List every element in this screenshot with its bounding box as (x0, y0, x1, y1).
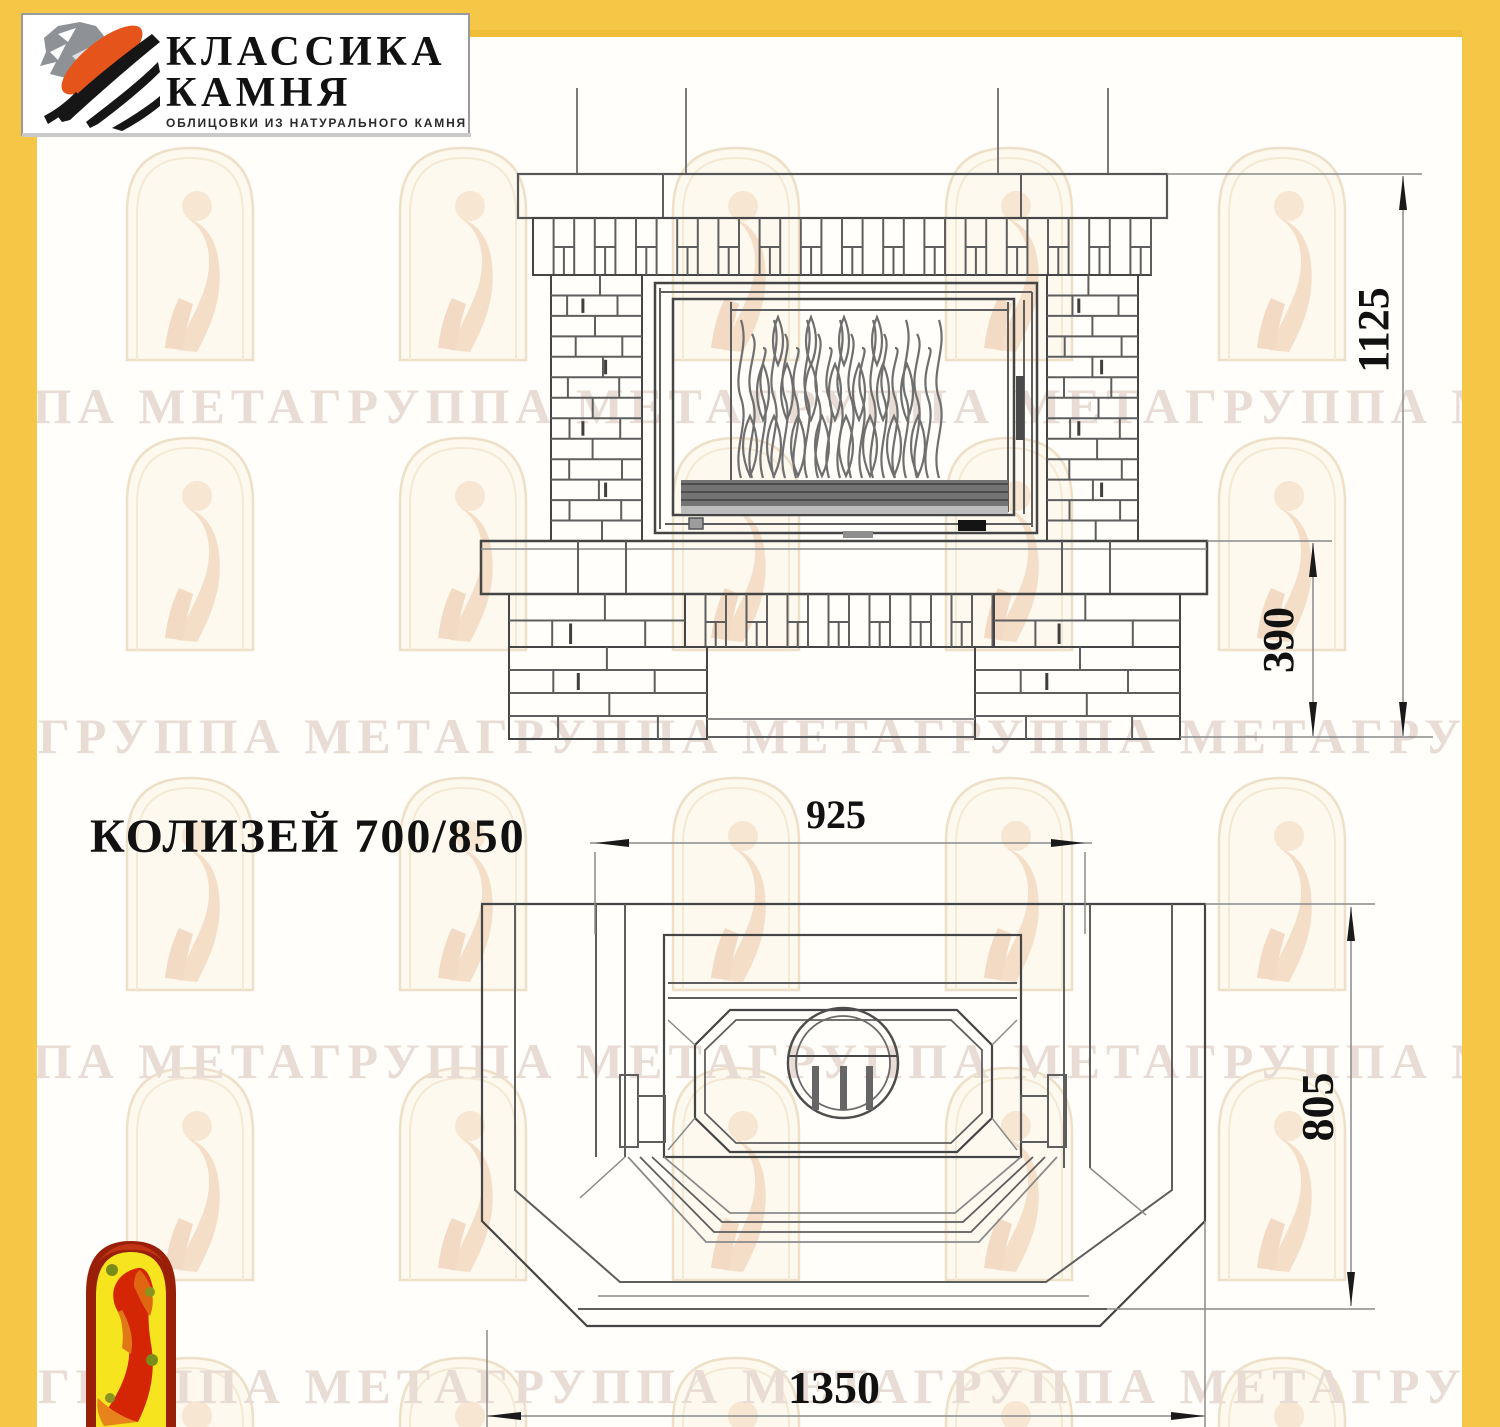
svg-text:ГРУППА МЕТАГРУППА МЕТАГРУППА М: ГРУППА МЕТАГРУППА МЕТАГРУППА МЕТАГРУППА … (38, 1358, 1500, 1414)
svg-text:КОЛИЗЕЙ 700/850: КОЛИЗЕЙ 700/850 (90, 810, 526, 863)
svg-text:1350: 1350 (788, 1362, 880, 1413)
svg-text:390: 390 (1254, 607, 1303, 673)
svg-text:805: 805 (1292, 1073, 1343, 1142)
svg-text:925: 925 (806, 792, 866, 837)
svg-text:КАМНЯ: КАМНЯ (166, 70, 352, 116)
svg-text:ОБЛИЦОВКИ ИЗ НАТУРАЛЬНОГО КАМН: ОБЛИЦОВКИ ИЗ НАТУРАЛЬНОГО КАМНЯ (166, 116, 467, 130)
svg-text:ГРУППА МЕТАГРУППА МЕТАГРУППА М: ГРУППА МЕТАГРУППА МЕТАГРУППА МЕТАГРУППА … (0, 1033, 1500, 1089)
svg-text:КЛАССИКА: КЛАССИКА (166, 29, 446, 75)
svg-text:1125: 1125 (1349, 287, 1398, 373)
